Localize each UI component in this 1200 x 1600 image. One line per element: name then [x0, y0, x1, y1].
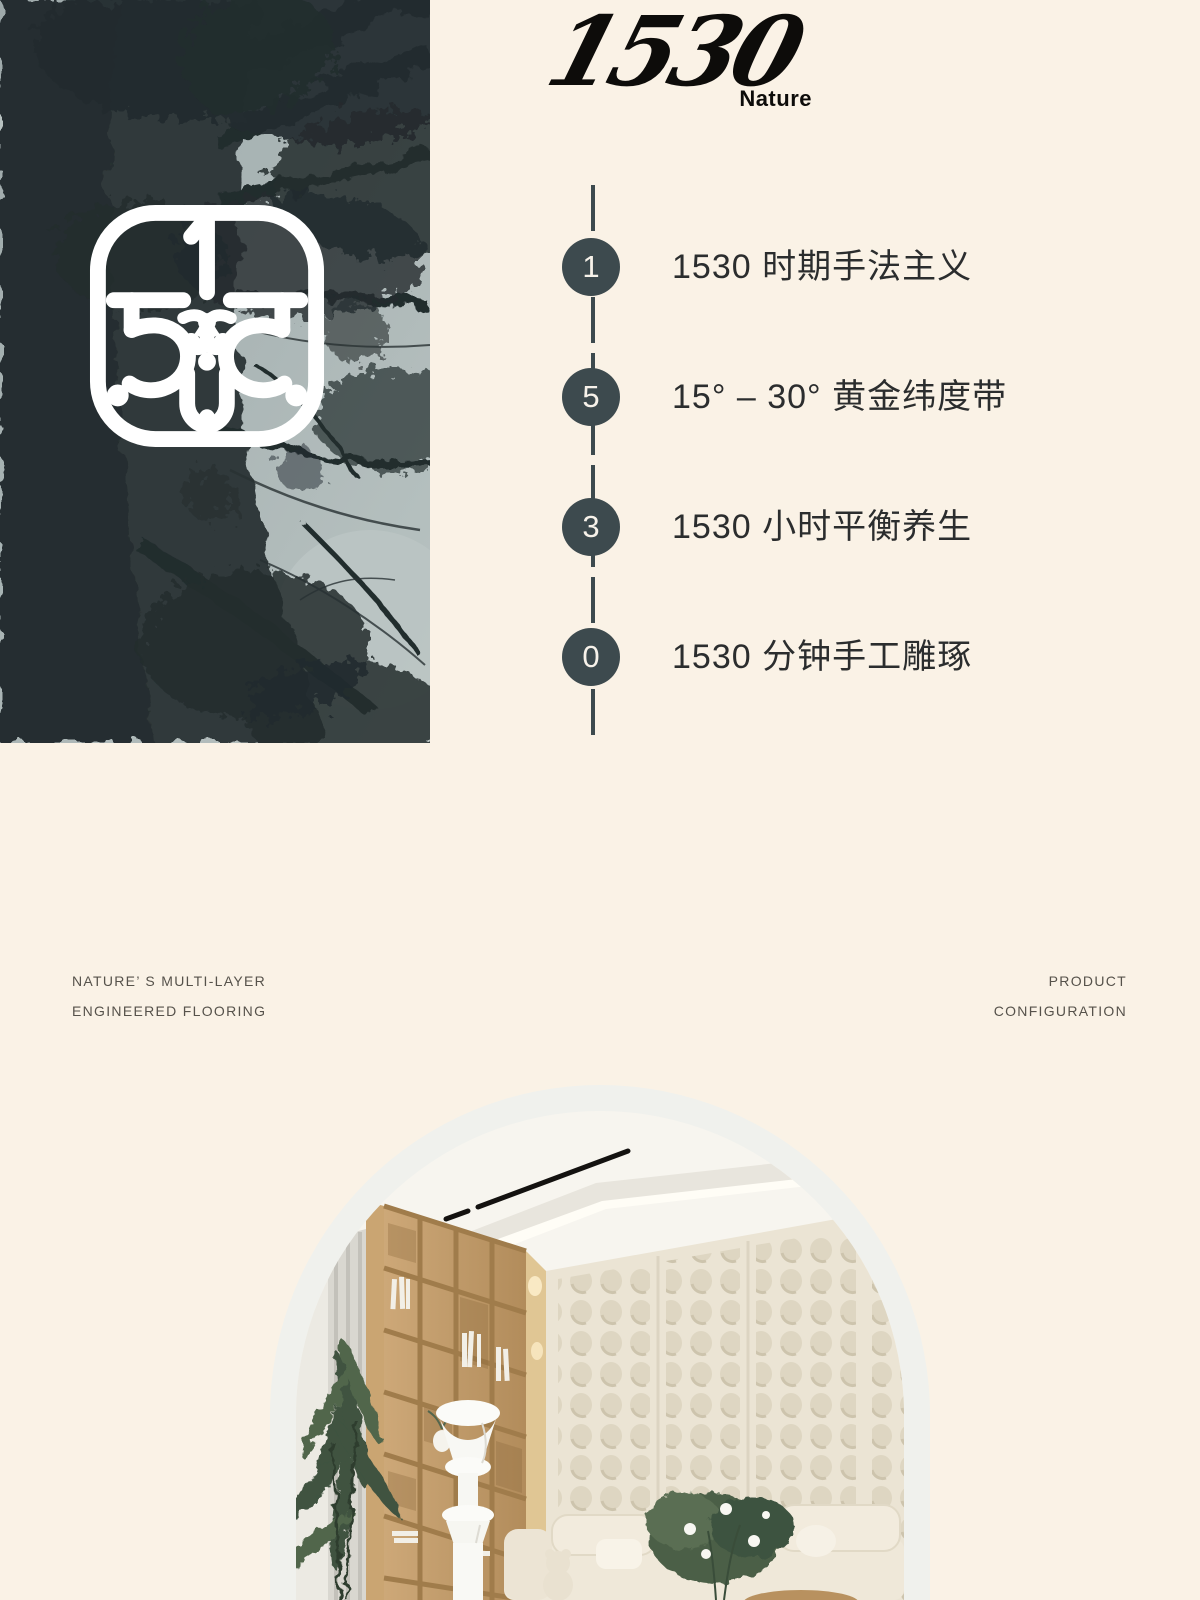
timeline-item-label: 1530 时期手法主义	[672, 238, 972, 296]
timeline-line	[591, 185, 595, 743]
timeline-item-label: 15° – 30° 黄金纬度带	[672, 368, 1007, 426]
section-label-right-line2: CONFIGURATION	[994, 996, 1127, 1026]
timeline-item: 3 1530 小时平衡养生	[562, 498, 1182, 556]
interior-scene-art	[296, 1111, 904, 1600]
brand-logo-1530: 1530	[538, 4, 842, 100]
section-label-right: PRODUCT CONFIGURATION	[994, 966, 1127, 1026]
timeline-item: 1 1530 时期手法主义	[562, 238, 1182, 296]
interior-arch-photo-inner	[296, 1111, 904, 1600]
section-label-right-line1: PRODUCT	[994, 966, 1127, 996]
plush-bear-icon	[543, 1549, 573, 1600]
brand-logo: 1530 Nature	[538, 4, 814, 124]
timeline-number-badge: 5	[562, 368, 620, 426]
timeline-number-badge: 3	[562, 498, 620, 556]
tree-photo	[0, 0, 430, 743]
timeline-number-badge: 1	[562, 238, 620, 296]
timeline-item: 5 15° – 30° 黄金纬度带	[562, 368, 1182, 426]
interior-arch-photo	[270, 1085, 930, 1600]
timeline-item-label: 1530 小时平衡养生	[672, 498, 972, 556]
timeline-item: 0 1530 分钟手工雕琢	[562, 628, 1182, 686]
section-label-left-line2: ENGINEERED FLOORING	[72, 996, 266, 1026]
timeline-number-badge: 0	[562, 628, 620, 686]
brand-monogram-1530-icon	[88, 203, 326, 449]
section-label-left-line1: NATURE’ S MULTI-LAYER	[72, 966, 266, 996]
section-label-left: NATURE’ S MULTI-LAYER ENGINEERED FLOORIN…	[72, 966, 266, 1026]
timeline-item-label: 1530 分钟手工雕琢	[672, 628, 972, 686]
